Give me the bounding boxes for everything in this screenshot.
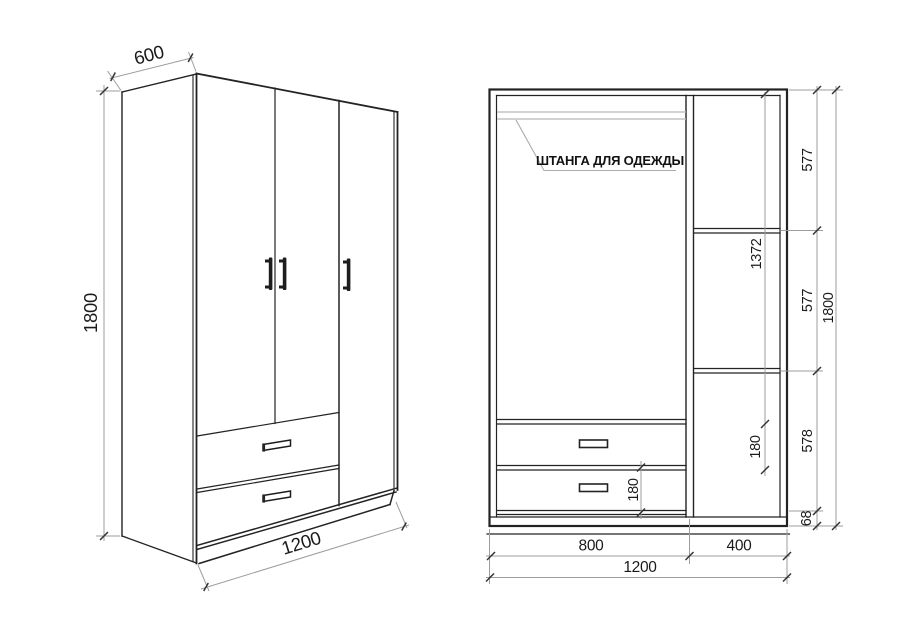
drawing-svg: 600 1800 1200 — [0, 0, 920, 628]
front-elevation-view: ШТАНГА ДЛЯ ОДЕЖДЫ 577 577 578 68 1800 — [486, 86, 843, 584]
perspective-view: 600 1800 1200 — [80, 41, 409, 591]
dim-section-middle-label: 577 — [800, 289, 816, 313]
side-panel — [122, 74, 197, 564]
shelves — [694, 229, 780, 374]
dimension-height: 1800 — [80, 85, 120, 541]
drawer-handle-upper — [263, 440, 291, 451]
dim-left-section-label: 800 — [579, 538, 605, 555]
front-doors — [197, 74, 398, 550]
door-handle-right — [343, 259, 350, 292]
drawer-handle-upper-front — [580, 440, 608, 448]
width-dimensions: 800 400 1200 — [486, 519, 791, 584]
wardrobe-technical-drawing: 600 1800 1200 — [0, 0, 920, 628]
door-handle-middle — [279, 258, 286, 291]
rod-callout-label: ШТАНГА ДЛЯ ОДЕЖДЫ — [536, 153, 684, 168]
door-handle-left — [265, 258, 272, 291]
dim-depth-label: 600 — [132, 41, 166, 69]
dim-total-width-label: 1200 — [623, 559, 657, 576]
drawer-fronts — [197, 413, 339, 493]
drawers — [497, 420, 686, 515]
rod-callout: ШТАНГА ДЛЯ ОДЕЖДЫ — [516, 120, 684, 171]
dim-section-top-label: 577 — [800, 148, 816, 172]
dim-lower-drawer-label: 180 — [626, 478, 642, 502]
dim-right-section-label: 400 — [727, 538, 753, 555]
drawer-handle-lower — [263, 491, 291, 502]
dim-section-bottom-label: 578 — [800, 429, 816, 453]
dim-total-height-label: 1800 — [821, 292, 837, 323]
height-dimensions: 577 577 578 68 1800 — [781, 86, 843, 530]
dim-plinth-label: 68 — [799, 511, 815, 527]
clothes-rod — [497, 112, 686, 119]
drawer-handle-lower-front — [580, 484, 608, 492]
dim-hanging-space-label: 1372 — [749, 238, 765, 269]
dimension-depth: 600 — [108, 41, 197, 91]
dim-upper-drawer-label: 180 — [748, 435, 764, 459]
dim-height-label: 1800 — [80, 293, 101, 333]
